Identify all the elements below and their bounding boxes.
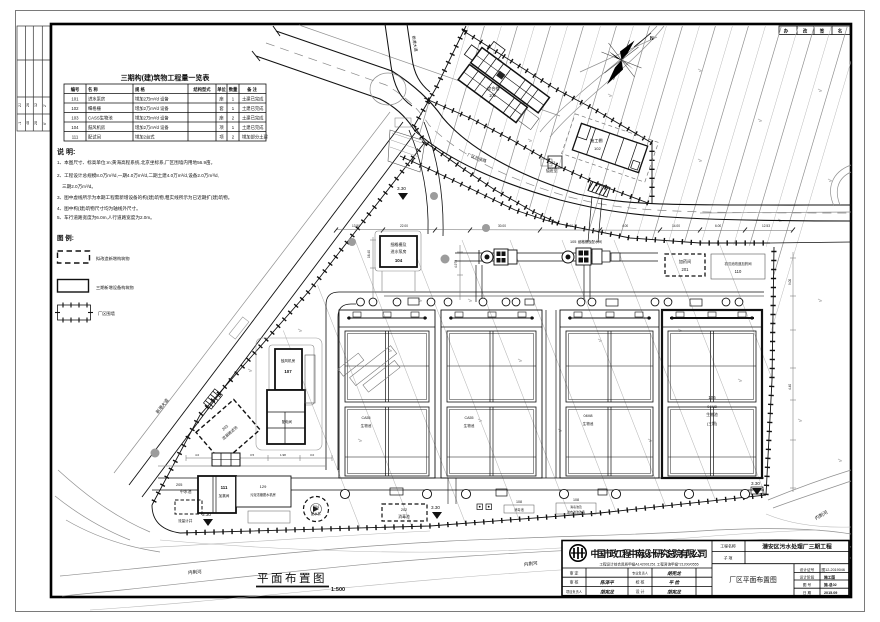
svg-text:9.00: 9.00 xyxy=(788,279,792,285)
svg-text:进水泵房: 进水泵房 xyxy=(88,96,105,103)
svg-text:平面布置图: 平面布置图 xyxy=(257,572,327,585)
svg-text:6': 6' xyxy=(43,122,47,125)
svg-text:消毒池及: 消毒池及 xyxy=(570,504,582,509)
svg-text:拟改造新增构筑物: 拟改造新增构筑物 xyxy=(96,255,130,262)
svg-text:101: 101 xyxy=(71,97,79,102)
svg-text:流量计井: 流量计井 xyxy=(178,518,193,523)
svg-text:增加2万m³/d 设备: 增加2万m³/d 设备 xyxy=(135,115,169,122)
svg-text:值班室: 值班室 xyxy=(546,168,558,173)
svg-text:增加2万m³/d 设备: 增加2万m³/d 设备 xyxy=(135,96,169,103)
svg-text:22.00: 22.00 xyxy=(400,224,408,228)
svg-text:1、本图尺寸、标高单位:m;黄海高程系统,北京坐标系,厂区围: 1、本图尺寸、标高单位:m;黄海高程系统,北京坐标系,厂区围墙内用地56.9亩。 xyxy=(57,159,215,166)
svg-text:签: 签 xyxy=(819,28,825,35)
svg-text:129: 129 xyxy=(260,484,267,489)
svg-text:2、工程设计总规模8.0万m³/d,一期4.0万m³/d,二: 2、工程设计总规模8.0万m³/d,一期4.0万m³/d,二期土建4.0万m³/… xyxy=(57,172,219,179)
svg-text:工程名称: 工程名称 xyxy=(720,544,736,549)
svg-text:设 计: 设 计 xyxy=(636,589,645,594)
svg-text:鼓风机房: 鼓风机房 xyxy=(281,358,296,363)
svg-text:加氯间: 加氯间 xyxy=(219,493,230,498)
svg-text:胡宪龙: 胡宪龙 xyxy=(667,588,682,594)
svg-text:配试间: 配试间 xyxy=(88,134,101,141)
svg-text:加药间: 加药间 xyxy=(679,258,692,265)
svg-text:规 格: 规 格 xyxy=(135,86,145,93)
svg-text:28: 28 xyxy=(34,121,38,125)
svg-text:消毒池: 消毒池 xyxy=(514,507,524,512)
svg-text:数量: 数量 xyxy=(229,86,238,93)
svg-text:潜安区污水处理厂三期工程: 潜安区污水处理厂三期工程 xyxy=(762,542,832,550)
svg-text:生物池: 生物池 xyxy=(583,421,594,426)
svg-text:3.30: 3.30 xyxy=(397,186,406,191)
svg-text:102: 102 xyxy=(71,106,79,111)
svg-text:细格栅及: 细格栅及 xyxy=(391,241,407,247)
svg-text:2': 2' xyxy=(43,104,47,107)
svg-text:污泥浓缩脱水机房: 污泥浓缩脱水机房 xyxy=(250,492,276,497)
svg-text:施工图: 施工图 xyxy=(824,574,835,579)
svg-text:103: 103 xyxy=(549,161,555,165)
svg-text:3.0: 3.0 xyxy=(310,453,315,457)
svg-text:座: 座 xyxy=(219,115,224,122)
svg-text:1.98: 1.98 xyxy=(280,453,286,457)
svg-text:12: 12 xyxy=(34,103,38,107)
svg-text:改: 改 xyxy=(803,28,808,35)
svg-text:26: 26 xyxy=(26,103,30,107)
svg-text:14.00: 14.00 xyxy=(672,224,680,228)
svg-text:消毒池: 消毒池 xyxy=(398,514,410,519)
svg-text:104: 104 xyxy=(71,125,79,130)
svg-text:N: N xyxy=(650,36,654,42)
svg-text:土建已完成: 土建已完成 xyxy=(242,96,264,103)
svg-text:进水泵房: 进水泵房 xyxy=(391,248,407,254)
svg-text:4.00: 4.00 xyxy=(622,224,628,228)
svg-text:108: 108 xyxy=(573,498,579,502)
svg-text:205: 205 xyxy=(176,483,182,487)
svg-text:增加2台式: 增加2台式 xyxy=(135,134,155,141)
svg-text:生物池: 生物池 xyxy=(361,423,372,428)
svg-text:6.00: 6.00 xyxy=(715,224,721,228)
svg-text:111: 111 xyxy=(72,135,79,140)
svg-text:三期新增设备构筑物: 三期新增设备构筑物 xyxy=(96,284,134,291)
svg-text:办: 办 xyxy=(784,28,789,35)
svg-text:16.40: 16.40 xyxy=(367,250,371,258)
svg-text:图 号: 图 号 xyxy=(803,582,812,587)
svg-text:04M8: 04M8 xyxy=(707,405,717,409)
svg-text:生物池: 生物池 xyxy=(706,412,718,417)
svg-text:初沉池改造加药间: 初沉池改造加药间 xyxy=(724,261,752,266)
svg-text:204: 204 xyxy=(313,505,319,509)
svg-text:施工棚: 施工棚 xyxy=(590,137,603,144)
svg-text:110: 110 xyxy=(735,269,742,274)
svg-text:4.0: 4.0 xyxy=(195,453,200,457)
svg-text:施-总02: 施-总02 xyxy=(824,582,837,587)
svg-text:综合楼: 综合楼 xyxy=(487,85,500,92)
svg-text:4.40: 4.40 xyxy=(788,384,792,390)
svg-text:CASS生物池: CASS生物池 xyxy=(88,115,113,122)
svg-text:107: 107 xyxy=(284,369,292,374)
svg-text:专业负责人: 专业负责人 xyxy=(632,571,649,576)
svg-text:101: 101 xyxy=(489,93,497,98)
svg-text:土建已完成: 土建已完成 xyxy=(242,115,264,122)
svg-text:审 定: 审 定 xyxy=(570,571,579,576)
svg-text:图 例:: 图 例: xyxy=(57,233,74,242)
svg-text:中水池: 中水池 xyxy=(180,489,192,494)
svg-text:平 俭: 平 俭 xyxy=(669,580,681,585)
svg-text:13.50: 13.50 xyxy=(352,224,360,228)
svg-text:3.30: 3.30 xyxy=(751,481,760,486)
svg-text:胡宪龙: 胡宪龙 xyxy=(600,588,615,594)
svg-text:胡宪龙: 胡宪龙 xyxy=(667,570,682,576)
svg-text:名: 名 xyxy=(838,28,843,35)
svg-text:工程设计综合资质甲级A142001251 工程咨询甲级*21: 工程设计综合资质甲级A142001251 工程咨询甲级*21200/0555 xyxy=(599,562,698,567)
svg-text:1:500: 1:500 xyxy=(331,587,345,593)
svg-text:48: 48 xyxy=(26,121,30,125)
svg-text:04M8: 04M8 xyxy=(584,414,593,418)
svg-text:105: 105 xyxy=(570,240,576,244)
svg-text:5、车行道路宽度为6.0m,人行道路宽度为2.0m。: 5、车行道路宽度为6.0m,人行道路宽度为2.0m。 xyxy=(57,214,155,221)
svg-text:细格栅及配水间: 细格栅及配水间 xyxy=(578,239,602,244)
svg-text:配水井: 配水井 xyxy=(311,511,322,516)
svg-text:三期构(建)筑物工程量一览表: 三期构(建)筑物工程量一览表 xyxy=(121,73,211,82)
svg-text:鼓风机房: 鼓风机房 xyxy=(88,124,105,131)
svg-text:2015.09: 2015.09 xyxy=(824,591,837,595)
svg-text:编号: 编号 xyxy=(71,86,80,93)
svg-text:增加部分土建: 增加部分土建 xyxy=(242,134,268,141)
svg-text:2J: 2J xyxy=(18,103,22,107)
svg-text:CA55: CA55 xyxy=(465,416,474,420)
svg-text:座: 座 xyxy=(219,96,224,103)
svg-text:名 称: 名 称 xyxy=(88,86,98,93)
svg-text:12.53: 12.53 xyxy=(762,224,770,228)
svg-text:日 期: 日 期 xyxy=(803,590,812,595)
svg-text:设计证号: 设计证号 xyxy=(800,567,815,572)
svg-text:103: 103 xyxy=(71,116,79,121)
svg-text:增加2万m³/d 设备: 增加2万m³/d 设备 xyxy=(135,124,169,131)
svg-text:套: 套 xyxy=(219,105,224,112)
svg-text:104: 104 xyxy=(395,258,403,263)
svg-text:(三期): (三期) xyxy=(707,421,718,426)
svg-text:16.00: 16.00 xyxy=(565,224,573,228)
svg-text:配电间: 配电间 xyxy=(282,419,293,424)
svg-text:3.30: 3.30 xyxy=(202,512,211,517)
svg-text:厂区围墙: 厂区围墙 xyxy=(98,310,115,317)
svg-text:校 核: 校 核 xyxy=(636,580,645,585)
svg-text:中国市政工程中南设计研究总院有限公司: 中国市政工程中南设计研究总院有限公司 xyxy=(591,548,708,559)
svg-text:CA55: CA55 xyxy=(362,416,371,420)
svg-text:生物池: 生物池 xyxy=(464,423,475,428)
svg-text:结构型式: 结构型式 xyxy=(193,86,211,93)
svg-text:土建已完成: 土建已完成 xyxy=(242,105,264,112)
svg-text:说 明:: 说 明: xyxy=(57,147,75,156)
svg-text:4、图中构(建)筑物尺寸均为轴线外尺寸。: 4、图中构(建)筑物尺寸均为轴线外尺寸。 xyxy=(57,205,141,212)
svg-text:3、图中虚线所示为本期工程需新增设备的构(建)筑物,粗实线所: 3、图中虚线所示为本期工程需新增设备的构(建)筑物,粗实线所示为已近期扩(建)筑… xyxy=(57,194,232,201)
svg-text:30.00: 30.00 xyxy=(498,224,506,228)
svg-text:子 项: 子 项 xyxy=(724,556,733,561)
svg-text:108: 108 xyxy=(516,500,522,504)
svg-text:设计阶段: 设计阶段 xyxy=(800,574,815,579)
svg-text:106: 106 xyxy=(708,395,716,400)
svg-text:201: 201 xyxy=(682,267,690,272)
svg-text:滤布滤池改造: 滤布滤池改造 xyxy=(567,509,585,514)
svg-text:土建已完成: 土建已完成 xyxy=(242,124,264,131)
svg-text:102: 102 xyxy=(594,146,601,151)
svg-text:细格栅: 细格栅 xyxy=(88,105,102,112)
svg-text:厂区平面布置图: 厂区平面布置图 xyxy=(729,575,777,584)
svg-text:陈泽平: 陈泽平 xyxy=(600,580,615,585)
svg-text:3.5: 3.5 xyxy=(250,453,255,457)
svg-text:202: 202 xyxy=(401,508,407,512)
svg-text:图12-2019046: 图12-2019046 xyxy=(822,568,845,572)
svg-text:-1: -1 xyxy=(18,122,22,125)
svg-text:单位: 单位 xyxy=(217,86,226,93)
svg-text:审 核: 审 核 xyxy=(570,580,579,585)
svg-text:增加2万m³/d 设备: 增加2万m³/d 设备 xyxy=(135,105,169,112)
svg-text:备 注: 备 注 xyxy=(247,86,257,93)
svg-text:项目负责人: 项目负责人 xyxy=(566,589,583,594)
svg-text:111: 111 xyxy=(221,485,228,490)
svg-text:3.30: 3.30 xyxy=(431,505,440,510)
